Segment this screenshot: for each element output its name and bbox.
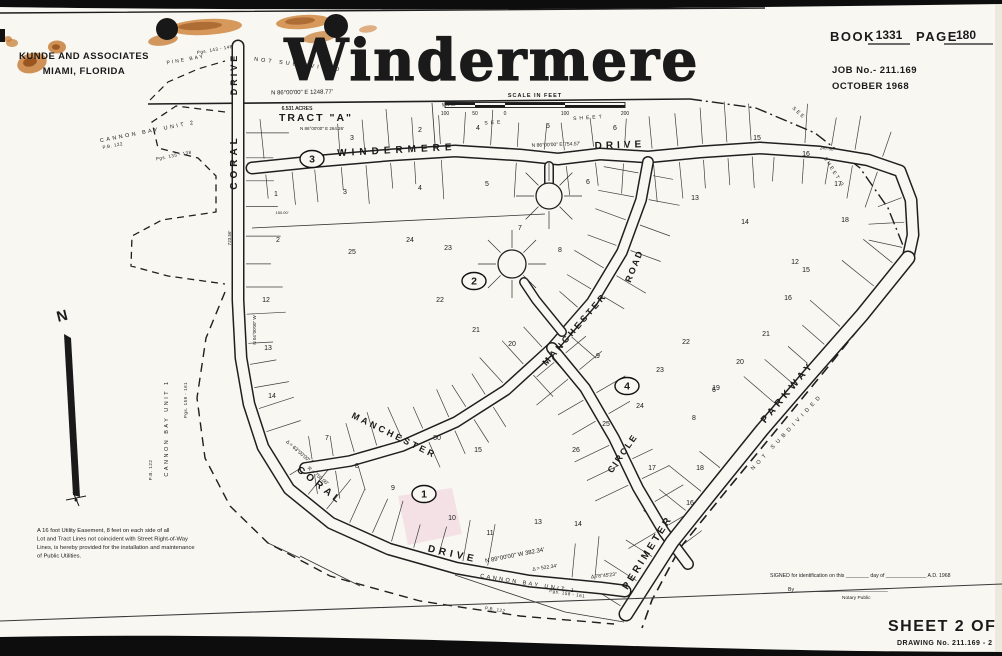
notary-label: Notary Public bbox=[842, 595, 871, 601]
lot-number: 3 bbox=[343, 189, 347, 196]
block-number: 4 bbox=[624, 381, 630, 393]
lot-number: 20 bbox=[736, 359, 744, 366]
lot-number: 16 bbox=[802, 151, 810, 158]
paper-edge-shade bbox=[995, 0, 1002, 656]
cul-de-sac-bulb bbox=[498, 250, 526, 278]
street-label: CORAL bbox=[229, 134, 240, 190]
lot-number: 4 bbox=[418, 185, 422, 192]
lot-number: 7 bbox=[518, 225, 522, 232]
lot-number: 7 bbox=[325, 435, 329, 442]
scale-tick: 100 bbox=[561, 111, 570, 117]
lot-number: 5 bbox=[546, 123, 550, 130]
plat-map: 1234 DRIVECORALWINDERMEREDRIVECORALDRIVE… bbox=[0, 0, 1002, 656]
lot-number: 8 bbox=[355, 463, 359, 470]
lot-number: 9 bbox=[391, 485, 395, 492]
firm-name: KUNDE AND ASSOCIATES bbox=[19, 51, 149, 62]
sheet-number: SHEET 2 OF 5 bbox=[888, 618, 1002, 635]
job-number: JOB No.- 211.169 bbox=[832, 65, 917, 76]
lot-number: 16 bbox=[686, 500, 694, 507]
survey-date: OCTOBER 1968 bbox=[832, 81, 909, 92]
lot-number: 26 bbox=[572, 447, 580, 454]
lot-number: 12 bbox=[262, 297, 270, 304]
scale-tick: 100 bbox=[441, 111, 450, 117]
lot-number: 5 bbox=[485, 181, 489, 188]
lot-number: 6 bbox=[586, 179, 590, 186]
bearing-annotation: N 86°00'00" E 264.26' bbox=[300, 126, 344, 131]
easement-line: of Public Utilities. bbox=[37, 554, 82, 560]
block-number: 1 bbox=[421, 489, 427, 501]
lot-number: 12 bbox=[791, 259, 799, 266]
lot-number: 13 bbox=[691, 195, 699, 202]
block-number: 3 bbox=[309, 154, 315, 166]
lot-number: 24 bbox=[636, 403, 644, 410]
scale-tick: 50 bbox=[472, 111, 478, 117]
firm-city: MIAMI, FLORIDA bbox=[43, 66, 125, 77]
cul-de-sac-bulb bbox=[536, 183, 562, 209]
lot-number: 17 bbox=[648, 465, 656, 472]
lot-number: 13 bbox=[534, 519, 542, 526]
lot-number: 1 bbox=[274, 191, 278, 198]
lot-number: 22 bbox=[436, 297, 444, 304]
easement-line: Lot and Tract Lines not coincident with … bbox=[37, 537, 188, 543]
scale-tick: 0 bbox=[504, 111, 507, 117]
area-label: Pgs. 158 - 161 bbox=[183, 382, 188, 418]
lot-number: 18 bbox=[841, 217, 849, 224]
plat-sheet: 1234 DRIVECORALWINDERMEREDRIVECORALDRIVE… bbox=[0, 0, 1002, 656]
lot-number: 23 bbox=[656, 367, 664, 374]
page-value: 180 bbox=[956, 28, 976, 42]
lot-number: 17 bbox=[834, 181, 842, 188]
lot-number: 8 bbox=[692, 415, 696, 422]
lot-number: 11 bbox=[486, 530, 493, 537]
easement-line: Lines, is hereby provided for the instal… bbox=[37, 545, 195, 551]
easement-line: A 16 foot Utility Easement, 8 feet on ea… bbox=[37, 528, 169, 534]
lot-number: 23 bbox=[444, 245, 452, 252]
street-label: DRIVE bbox=[229, 53, 239, 96]
lot-number: 9 bbox=[596, 353, 600, 360]
bearing-annotation: N 04°00'00" W bbox=[252, 315, 257, 345]
lot-number: 22 bbox=[682, 339, 690, 346]
book-label: BOOK bbox=[830, 29, 875, 44]
lot-number: 21 bbox=[762, 331, 770, 338]
lot-number: 21 bbox=[472, 327, 480, 334]
street-label: DRIVE bbox=[594, 139, 645, 152]
lot-number: 14 bbox=[268, 393, 276, 400]
bearing-annotation: 150.00' bbox=[276, 210, 289, 215]
lot-number: 6 bbox=[613, 125, 617, 132]
lot-number: 20 bbox=[508, 341, 516, 348]
tract-a-label: TRACT "A" bbox=[279, 112, 353, 124]
drawing-number: DRAWING No. 211.169 - 2 bbox=[897, 640, 993, 647]
lot-number: 15 bbox=[753, 135, 761, 142]
area-label: P.B. 122 bbox=[148, 460, 153, 481]
lot-number: 15 bbox=[474, 447, 482, 454]
lot-number: 14 bbox=[741, 219, 749, 226]
lot-number: 15 bbox=[802, 267, 810, 274]
lot-number: 25 bbox=[602, 421, 610, 428]
bearing-annotation: 723.56' bbox=[227, 231, 232, 246]
lot-number: 3 bbox=[350, 135, 354, 142]
area-label: CANNON BAY UNIT 1 bbox=[164, 379, 170, 476]
plat-title: Windermere bbox=[283, 27, 699, 94]
lot-number: 14 bbox=[574, 521, 582, 528]
lot-number: 13 bbox=[264, 345, 272, 352]
lot-number: 18 bbox=[696, 465, 704, 472]
lot-number: 8 bbox=[558, 247, 562, 254]
lot-number: 4 bbox=[476, 125, 480, 132]
page-label: PAGE bbox=[916, 29, 958, 44]
block-number: 2 bbox=[471, 276, 477, 288]
scale-tick: 200 bbox=[621, 111, 630, 117]
signature-line: SIGNED for identification on this ______… bbox=[770, 573, 951, 579]
lot-number: 19 bbox=[712, 385, 720, 392]
lot-number: 25 bbox=[348, 249, 356, 256]
lot-number: 16 bbox=[784, 295, 792, 302]
book-value: 1331 bbox=[876, 28, 903, 42]
lot-number: 2 bbox=[276, 237, 280, 244]
lot-number: 50 bbox=[433, 435, 441, 442]
lot-number: 24 bbox=[406, 237, 414, 244]
lot-number: 10 bbox=[448, 515, 456, 522]
lot-number: 2 bbox=[418, 127, 422, 134]
